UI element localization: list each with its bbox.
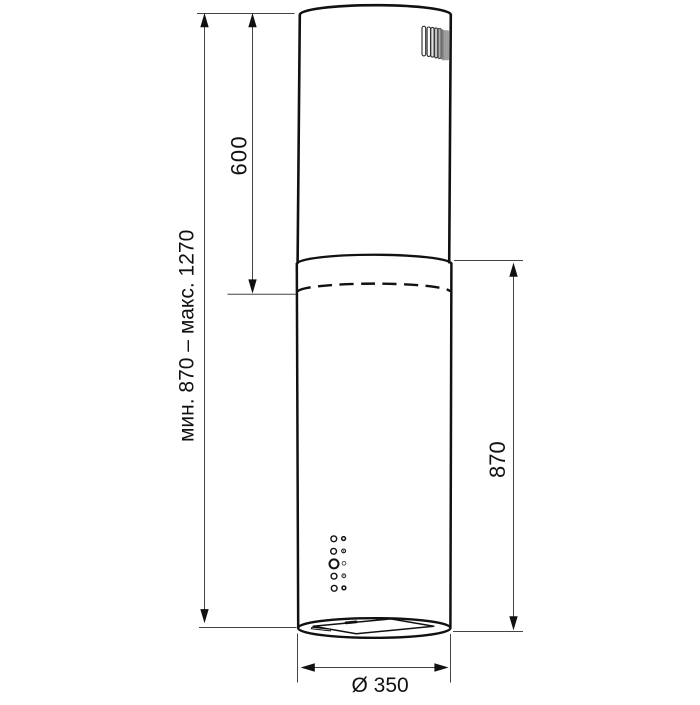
svg-text:870: 870: [485, 441, 510, 478]
svg-text:Ø 350: Ø 350: [352, 674, 409, 697]
svg-text:600: 600: [226, 135, 251, 175]
svg-text:мин. 870 – макс. 1270: мин. 870 – макс. 1270: [176, 230, 199, 442]
